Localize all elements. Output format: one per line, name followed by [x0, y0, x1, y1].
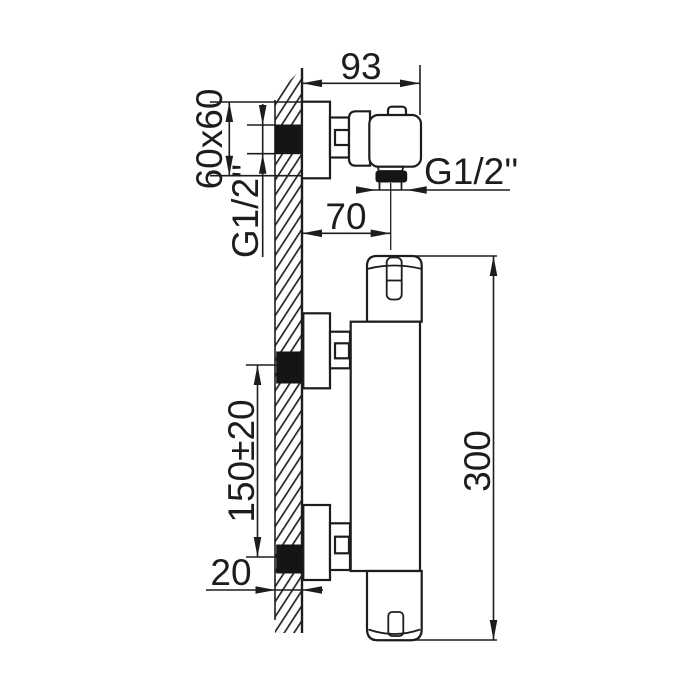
outlet-neck-top	[378, 167, 404, 171]
dim-93-label: 93	[340, 46, 381, 87]
wall-plate-upper	[303, 313, 330, 388]
arrow-down-icon	[259, 105, 267, 125]
inlet-wall-seal-top	[275, 125, 302, 154]
dim-inlet-thread-label: G1/2''	[225, 164, 266, 258]
technical-drawing-page: 93 60x60 G1/2'' 70 G1/2'' 150±20	[0, 0, 700, 700]
arrow-right-icon	[371, 230, 391, 238]
mixer-dimension-drawing: 93 60x60 G1/2'' 70 G1/2'' 150±20	[0, 0, 700, 700]
arrow-left-icon	[302, 80, 322, 88]
wall-plate-top	[302, 102, 330, 179]
arrow-left-icon	[302, 586, 322, 594]
arrow-right-icon	[256, 586, 276, 594]
dim-300-label: 300	[457, 430, 498, 492]
arrow-up-icon	[254, 365, 262, 385]
wall-plate-lower	[303, 505, 330, 580]
dim-outlet-thread-label: G1/2''	[424, 151, 518, 192]
connection-nut-detail-top	[335, 130, 349, 145]
arrow-left-icon	[302, 230, 322, 238]
flow-handle	[367, 571, 422, 640]
dim-20-label: 20	[210, 552, 251, 593]
outlet-thread-ring	[376, 171, 407, 182]
dim-70-label: 70	[325, 196, 366, 237]
arrow-right-icon	[356, 186, 376, 194]
inlet-wall-seal-upper	[277, 352, 302, 383]
arrow-down-icon	[490, 620, 498, 640]
dim-60x60-label: 60x60	[189, 89, 230, 190]
connection-nut-detail-upper	[335, 343, 349, 358]
connection-nut-detail-lower	[335, 537, 349, 554]
mixer-body-top	[369, 115, 421, 167]
body-rear-section-top	[349, 111, 370, 165]
inlet-wall-seal-lower	[277, 545, 302, 573]
mixer-body-front	[351, 322, 420, 571]
arrow-down-icon	[254, 537, 262, 557]
dim-150-label: 150±20	[221, 399, 262, 522]
arrow-right-icon	[400, 80, 420, 88]
arrow-up-icon	[490, 256, 498, 276]
